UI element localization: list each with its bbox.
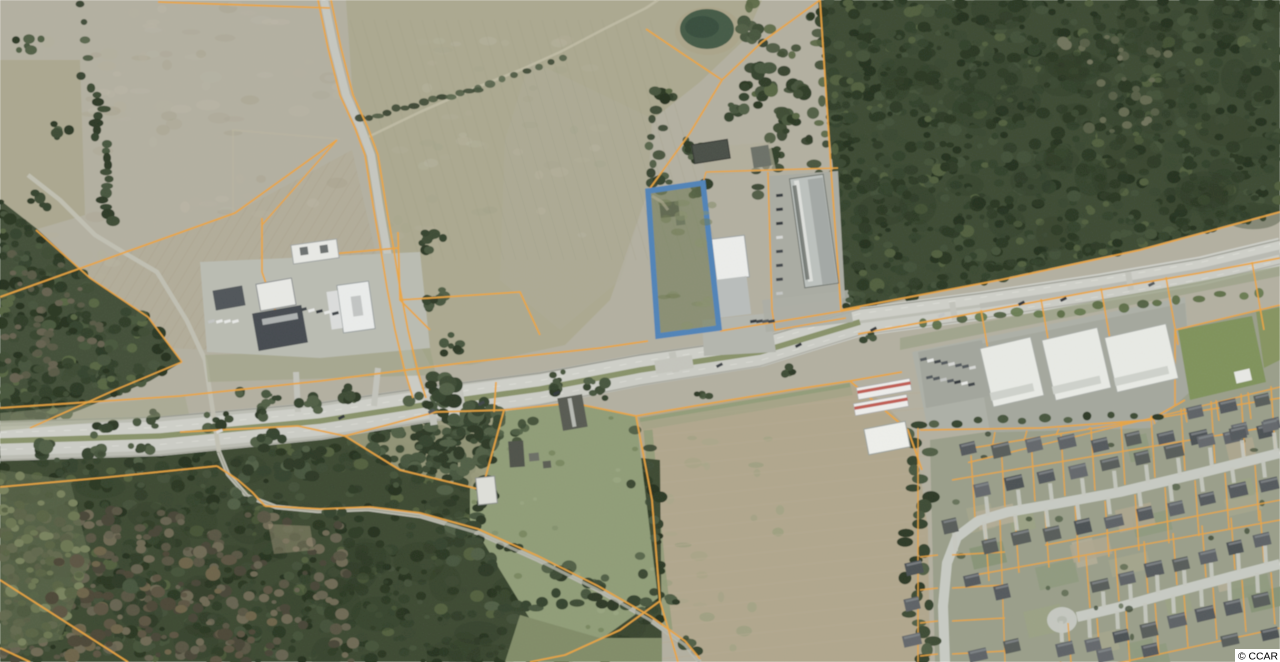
svg-text:© CCAR: © CCAR — [1238, 652, 1278, 662]
